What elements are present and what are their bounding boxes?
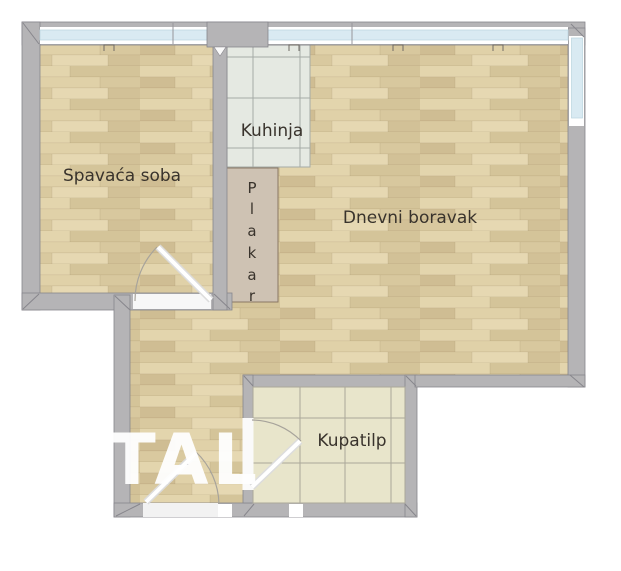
closet-letter-2: l (250, 200, 254, 218)
entrance-side-panel (218, 504, 232, 517)
wall-bathroom-top (243, 375, 417, 387)
wall-bathroom-right (405, 375, 417, 517)
window-right (569, 36, 584, 126)
kitchen-label: Kuhinja (241, 121, 304, 141)
floor-plan: Spavaća soba Kuhinja Dnevni boravak Kupa… (0, 0, 621, 571)
closet-letter-1: P (247, 179, 256, 197)
closet-letter-3: a (247, 222, 256, 240)
watermark-text: TAL (108, 419, 261, 501)
wall-kitchen-top-solid (207, 22, 268, 47)
bedroom-label: Spavaća soba (63, 166, 181, 186)
closet-letter-6: r (249, 287, 256, 305)
living-room-label: Dnevni boravak (343, 208, 477, 228)
bathroom-vent (289, 504, 303, 517)
bathroom-label: Kupatilp (317, 431, 386, 451)
kitchen-floor (227, 45, 310, 167)
wall-bedroom-kitchen (213, 45, 227, 310)
closet-letter-5: a (247, 266, 256, 284)
floor-plan-canvas: Spavaća soba Kuhinja Dnevni boravak Kupa… (0, 0, 621, 571)
wall-left (22, 22, 40, 310)
wall-living-bottom (415, 375, 585, 387)
closet-letter-4: k (248, 244, 257, 262)
